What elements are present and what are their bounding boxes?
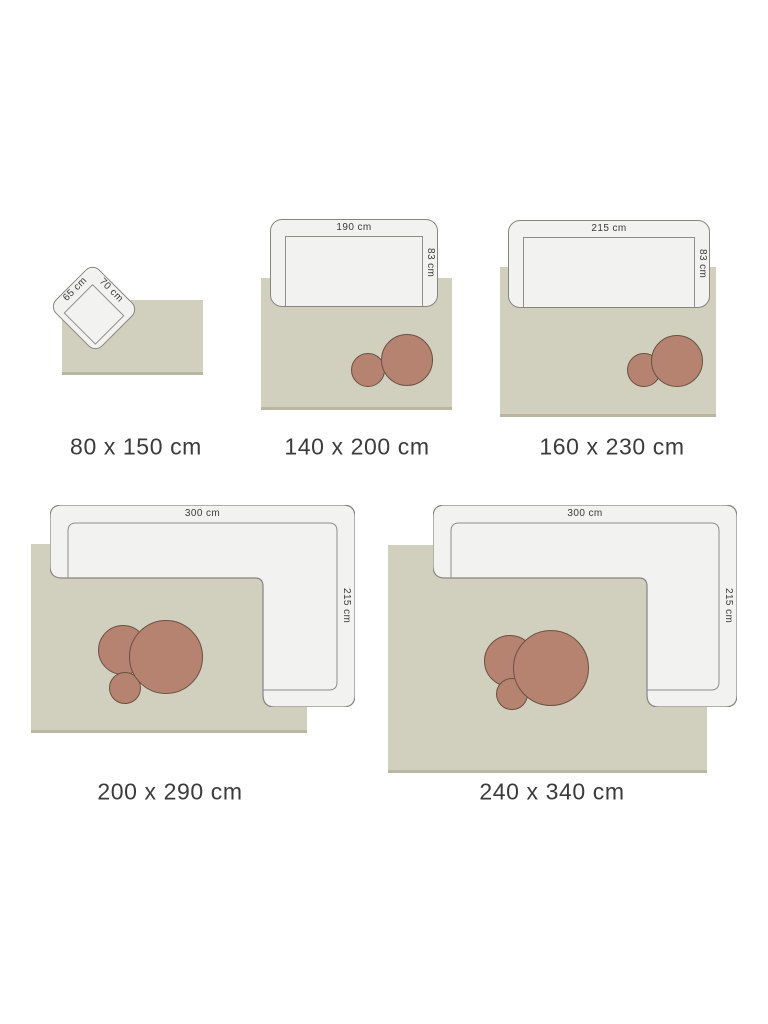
coffee-table-large bbox=[513, 630, 589, 706]
size-label-240x340: 240 x 340 cm bbox=[479, 779, 624, 806]
corner-sofa-depth-label: 215 cm bbox=[720, 505, 736, 707]
panel-240x340: 300 cm 215 cm 240 x 340 cm bbox=[0, 0, 768, 1024]
corner-sofa-width-label: 300 cm bbox=[433, 509, 737, 519]
rug-size-guide: 65 cm 70 cm 80 x 150 cm 190 cm 83 cm 140… bbox=[0, 0, 768, 1024]
